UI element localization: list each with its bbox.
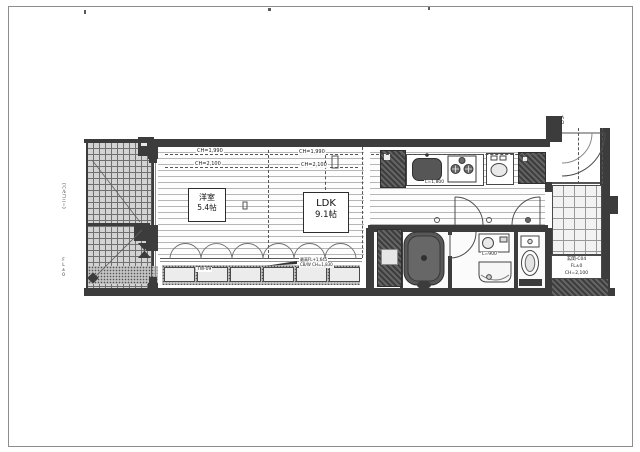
south-sash-strip	[162, 265, 360, 285]
sash-panel	[263, 267, 294, 282]
bath-washroom-wall	[448, 256, 452, 296]
ldk-size: 9.1帖	[304, 210, 348, 221]
sash-panel	[230, 267, 261, 282]
entry-door-label: AD	[560, 116, 565, 126]
entry-note-1: 玄関-C04	[552, 256, 601, 263]
western-room-size: 5.4帖	[189, 203, 225, 213]
left-wall-upper	[148, 139, 158, 159]
ch-label-2b: CH=2,100	[300, 163, 328, 168]
room-divider-dash	[268, 150, 269, 258]
west-window-line2	[155, 157, 156, 285]
floor-plan-page: { "plan": { "rooms": { "western_room": {…	[0, 0, 640, 452]
entry-tile-floor	[552, 185, 602, 255]
kitchen-zone-dash	[325, 150, 326, 190]
right-wall-notch	[600, 196, 618, 214]
washer-label-box	[381, 249, 398, 265]
cabinet-notch	[523, 157, 527, 161]
vanity-top-unit	[486, 153, 514, 185]
bath-washroom-wall-stub	[448, 229, 452, 235]
porch-dash-2	[602, 128, 603, 184]
left-wall-mid	[146, 225, 158, 251]
ch-label-1b: CH=1,990	[298, 150, 326, 155]
entry-note-box: 玄関-C04 FL±0 CH=2,100	[551, 255, 602, 279]
porch-dash-1	[578, 128, 579, 184]
kitchen-length-label: L=1,800	[424, 180, 445, 185]
ch-label-2a: CH=2,100	[194, 162, 222, 167]
balcony-note: （バルコニー）	[60, 180, 66, 258]
window-note-2: CB/W CH=1,830	[299, 263, 334, 268]
west-window-line	[151, 157, 152, 285]
ch-dash-line-1	[165, 154, 358, 155]
ldk-name: LDK	[304, 197, 348, 210]
south-window-line	[160, 258, 362, 259]
bottom-wall	[84, 288, 615, 296]
washroom-wc-wall	[514, 229, 518, 296]
scan-speck	[268, 8, 271, 11]
balcony-top-wall	[84, 139, 152, 143]
entry-note-3: CH=2,100	[552, 270, 601, 277]
vanity-length-label: L=900	[481, 252, 498, 257]
scan-speck	[428, 7, 430, 10]
balcony-edge-strip	[88, 266, 158, 284]
sash-panel	[329, 267, 360, 282]
western-room-name: 洋室	[189, 192, 225, 203]
entry-note-2: FL±0	[552, 263, 601, 270]
porch-step	[552, 279, 608, 296]
balcony-fl-note: FL±0	[61, 258, 66, 288]
wc-label-chip	[519, 279, 542, 286]
kitchen-sink-icon	[412, 158, 442, 181]
ldk-washer-wall	[366, 228, 374, 296]
ch-label-1a: CH=1,990	[196, 149, 224, 154]
ch-dash-line-kitchen	[371, 154, 543, 155]
scan-speck	[84, 10, 86, 14]
entry-threshold	[552, 182, 600, 184]
ch-dash-line-2	[165, 167, 358, 168]
wc-entry-wall-stub	[545, 182, 552, 192]
top-wall	[150, 139, 550, 147]
sash-panel	[164, 267, 195, 282]
sash-label: TW-09	[196, 267, 212, 272]
sash-panel	[296, 267, 327, 282]
western-room-label-box: 洋室 5.4帖	[188, 188, 226, 222]
ldk-label-box: LDK 9.1帖	[303, 192, 349, 233]
ldk-kitchen-dash	[362, 147, 363, 258]
